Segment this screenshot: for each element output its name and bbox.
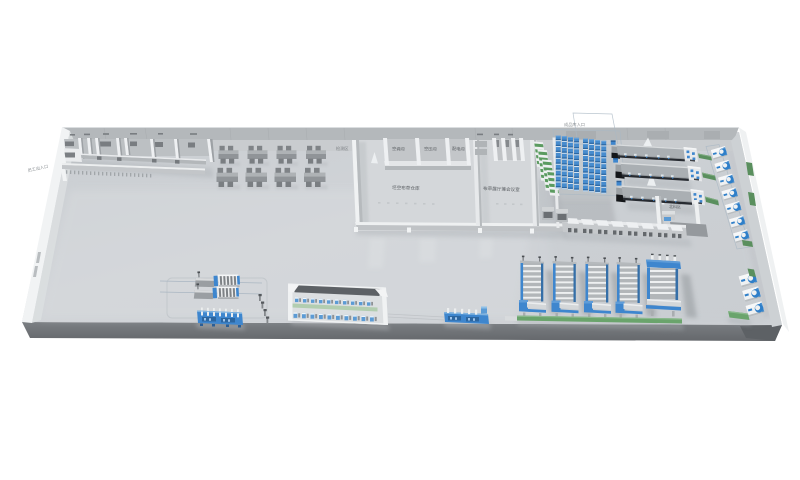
svg-text:检测区: 检测区 — [336, 145, 349, 152]
svg-text:成品库入口: 成品库入口 — [564, 121, 585, 128]
svg-text:北料区: 北料区 — [669, 203, 681, 209]
